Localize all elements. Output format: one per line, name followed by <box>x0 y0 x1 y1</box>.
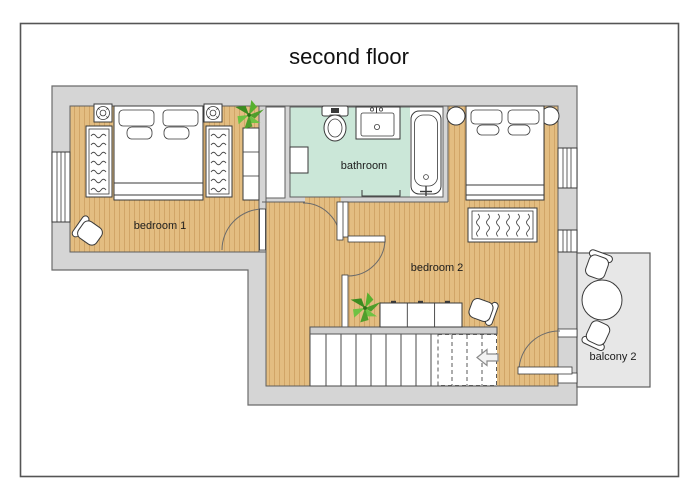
bedroom2-bed <box>466 106 544 200</box>
bedroom2-side-table-left <box>447 107 465 125</box>
bedroom1-tall-cabinet <box>243 128 259 200</box>
hall-niche <box>266 107 285 198</box>
floor-plan-canvas: second floor <box>0 0 700 500</box>
page-title: second floor <box>289 44 409 69</box>
bathroom-cabinet <box>290 147 308 173</box>
floor-plan-page: second floor <box>0 0 700 500</box>
vanity-sink <box>356 107 400 139</box>
bathtub <box>411 111 441 196</box>
balcony <box>577 249 650 387</box>
bedroom1-window <box>52 152 70 222</box>
bedroom2-window-lower <box>558 230 577 252</box>
bathroom-label: bathroom <box>341 160 387 172</box>
bedroom1-bed <box>114 106 203 200</box>
bedroom1-nightstand-left <box>94 104 112 122</box>
bedroom2-sideboard <box>380 301 462 327</box>
toilet <box>322 106 348 141</box>
bedroom1-label: bedroom 1 <box>134 220 187 232</box>
landing-bedroom2-wall-lower <box>342 275 348 330</box>
stairs-railing <box>310 327 497 334</box>
lamp-icon <box>207 107 220 120</box>
bedroom1-wardrobe-left <box>86 126 112 197</box>
balcony-round-table <box>582 280 622 320</box>
balcony-door-leaf <box>518 367 572 374</box>
bedroom2-label: bedroom 2 <box>411 262 464 274</box>
bedroom1-wardrobe-right <box>206 126 232 197</box>
balcony2-label: balcony 2 <box>589 351 636 363</box>
balcony-door-jamb-top <box>558 329 577 337</box>
balcony-door-jamb-bottom <box>558 373 577 383</box>
lamp-icon <box>97 107 110 120</box>
bedroom2-window-upper <box>558 148 577 188</box>
staircase <box>310 327 498 386</box>
bedroom2-rug <box>468 208 537 242</box>
bedroom1-nightstand-right <box>204 104 222 122</box>
